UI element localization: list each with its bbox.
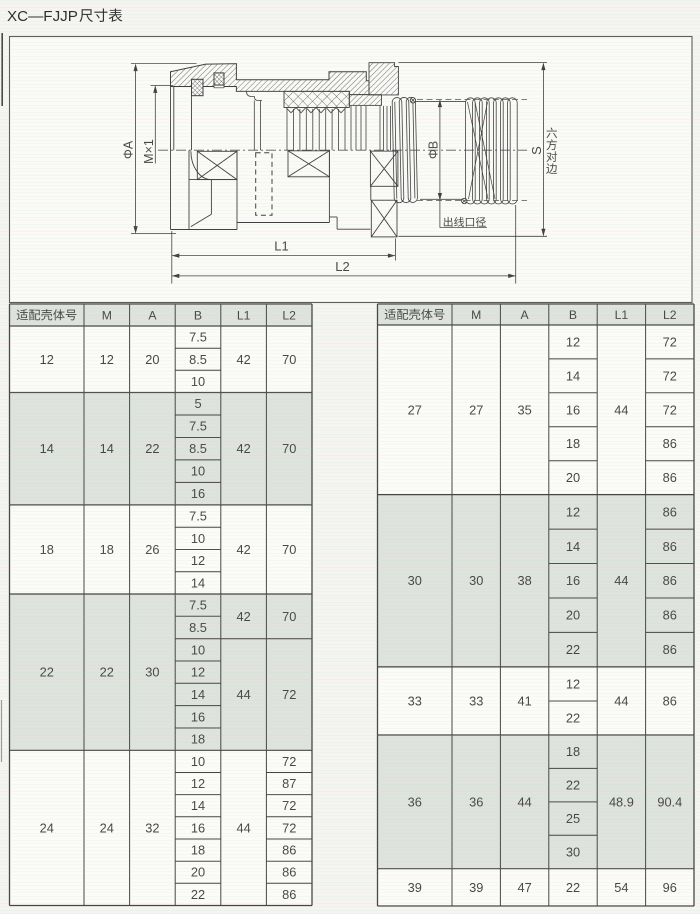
svg-text:18: 18: [40, 542, 54, 557]
svg-text:42: 42: [236, 609, 250, 624]
svg-text:72: 72: [282, 820, 296, 835]
svg-text:12: 12: [191, 776, 205, 791]
svg-text:22: 22: [145, 441, 159, 456]
svg-text:86: 86: [663, 642, 677, 657]
svg-text:22: 22: [100, 665, 114, 680]
svg-text:18: 18: [100, 542, 114, 557]
svg-text:44: 44: [236, 820, 250, 835]
svg-text:7.5: 7.5: [189, 509, 207, 524]
svg-text:16: 16: [566, 402, 580, 417]
svg-text:L2: L2: [663, 308, 677, 322]
svg-text:20: 20: [191, 865, 205, 880]
svg-text:14: 14: [191, 687, 205, 702]
svg-text:14: 14: [566, 368, 580, 383]
svg-text:8.5: 8.5: [189, 620, 207, 635]
svg-text:12: 12: [566, 504, 580, 519]
svg-text:L2: L2: [282, 308, 296, 322]
svg-text:22: 22: [566, 642, 580, 657]
svg-text:16: 16: [191, 486, 205, 501]
svg-text:S: S: [529, 146, 544, 155]
svg-text:35: 35: [517, 402, 531, 417]
svg-text:14: 14: [100, 441, 114, 456]
svg-text:22: 22: [566, 778, 580, 793]
svg-text:16: 16: [566, 573, 580, 588]
svg-text:38: 38: [517, 573, 531, 588]
svg-text:22: 22: [40, 665, 54, 680]
svg-text:7.5: 7.5: [189, 419, 207, 434]
svg-text:70: 70: [282, 352, 296, 367]
svg-text:86: 86: [663, 436, 677, 451]
svg-text:86: 86: [663, 608, 677, 623]
svg-text:ΦA: ΦA: [122, 140, 136, 159]
svg-text:M×1: M×1: [142, 139, 156, 164]
svg-text:12: 12: [191, 553, 205, 568]
svg-text:87: 87: [282, 776, 296, 791]
svg-text:72: 72: [282, 687, 296, 702]
svg-text:70: 70: [282, 441, 296, 456]
svg-text:16: 16: [191, 820, 205, 835]
svg-text:7.5: 7.5: [189, 598, 207, 613]
svg-text:10: 10: [191, 531, 205, 546]
svg-text:XC—FJJP: XC—FJJP: [7, 8, 78, 25]
svg-text:14: 14: [191, 798, 205, 813]
svg-text:L1: L1: [237, 308, 251, 322]
svg-text:72: 72: [663, 368, 677, 383]
svg-text:72: 72: [282, 754, 296, 769]
svg-text:26: 26: [145, 542, 159, 557]
svg-text:39: 39: [408, 880, 422, 895]
svg-text:27: 27: [408, 402, 422, 417]
svg-text:22: 22: [191, 887, 205, 902]
svg-text:30: 30: [145, 665, 159, 680]
svg-text:7.5: 7.5: [189, 330, 207, 345]
svg-text:20: 20: [145, 352, 159, 367]
svg-text:86: 86: [663, 694, 677, 709]
svg-text:36: 36: [469, 794, 483, 809]
svg-text:32: 32: [145, 820, 159, 835]
svg-text:22: 22: [566, 711, 580, 726]
svg-text:42: 42: [236, 441, 250, 456]
svg-text:44: 44: [517, 794, 531, 809]
svg-text:30: 30: [469, 573, 483, 588]
svg-text:86: 86: [663, 470, 677, 485]
svg-text:90.4: 90.4: [657, 794, 682, 809]
svg-text:18: 18: [566, 744, 580, 759]
svg-text:86: 86: [282, 887, 296, 902]
svg-text:25: 25: [566, 811, 580, 826]
svg-text:86: 86: [282, 865, 296, 880]
svg-text:48.9: 48.9: [609, 794, 634, 809]
svg-text:14: 14: [40, 441, 54, 456]
svg-text:24: 24: [40, 820, 54, 835]
svg-text:14: 14: [191, 575, 205, 590]
svg-text:12: 12: [100, 352, 114, 367]
svg-text:72: 72: [663, 402, 677, 417]
svg-text:12: 12: [566, 676, 580, 691]
svg-text:33: 33: [408, 694, 422, 709]
svg-text:10: 10: [191, 754, 205, 769]
svg-text:22: 22: [566, 880, 580, 895]
svg-text:70: 70: [282, 609, 296, 624]
svg-text:42: 42: [236, 352, 250, 367]
svg-text:44: 44: [614, 694, 628, 709]
svg-text:36: 36: [408, 794, 422, 809]
svg-text:L2: L2: [335, 259, 349, 274]
svg-text:M: M: [102, 308, 112, 322]
svg-text:47: 47: [517, 880, 531, 895]
svg-text:30: 30: [566, 845, 580, 860]
svg-text:96: 96: [663, 880, 677, 895]
svg-text:18: 18: [191, 843, 205, 858]
svg-text:41: 41: [517, 694, 531, 709]
svg-text:33: 33: [469, 694, 483, 709]
svg-text:B: B: [194, 308, 202, 322]
svg-text:8.5: 8.5: [189, 441, 207, 456]
svg-text:86: 86: [663, 504, 677, 519]
svg-text:8.5: 8.5: [189, 352, 207, 367]
svg-text:10: 10: [191, 464, 205, 479]
svg-text:86: 86: [663, 573, 677, 588]
svg-text:86: 86: [282, 843, 296, 858]
svg-text:86: 86: [663, 539, 677, 554]
svg-text:12: 12: [566, 335, 580, 350]
svg-text:44: 44: [614, 573, 628, 588]
svg-text:39: 39: [469, 880, 483, 895]
svg-text:10: 10: [191, 642, 205, 657]
svg-text:72: 72: [282, 798, 296, 813]
svg-text:A: A: [148, 308, 157, 322]
svg-text:54: 54: [614, 880, 628, 895]
svg-text:20: 20: [566, 608, 580, 623]
svg-text:16: 16: [191, 709, 205, 724]
svg-text:20: 20: [566, 470, 580, 485]
svg-text:18: 18: [191, 732, 205, 747]
svg-text:12: 12: [40, 352, 54, 367]
svg-text:24: 24: [100, 820, 114, 835]
svg-text:M: M: [471, 308, 481, 322]
svg-text:30: 30: [408, 573, 422, 588]
svg-text:ΦB: ΦB: [427, 141, 441, 159]
svg-text:70: 70: [282, 542, 296, 557]
svg-text:42: 42: [236, 542, 250, 557]
svg-text:12: 12: [191, 665, 205, 680]
svg-text:44: 44: [614, 402, 628, 417]
svg-text:72: 72: [663, 335, 677, 350]
svg-text:27: 27: [469, 402, 483, 417]
svg-text:10: 10: [191, 374, 205, 389]
svg-text:L1: L1: [615, 308, 629, 322]
svg-text:L1: L1: [274, 239, 288, 254]
svg-text:A: A: [521, 308, 530, 322]
svg-text:14: 14: [566, 539, 580, 554]
svg-text:B: B: [569, 308, 577, 322]
svg-text:18: 18: [566, 436, 580, 451]
svg-text:44: 44: [236, 687, 250, 702]
svg-text:5: 5: [194, 396, 201, 411]
